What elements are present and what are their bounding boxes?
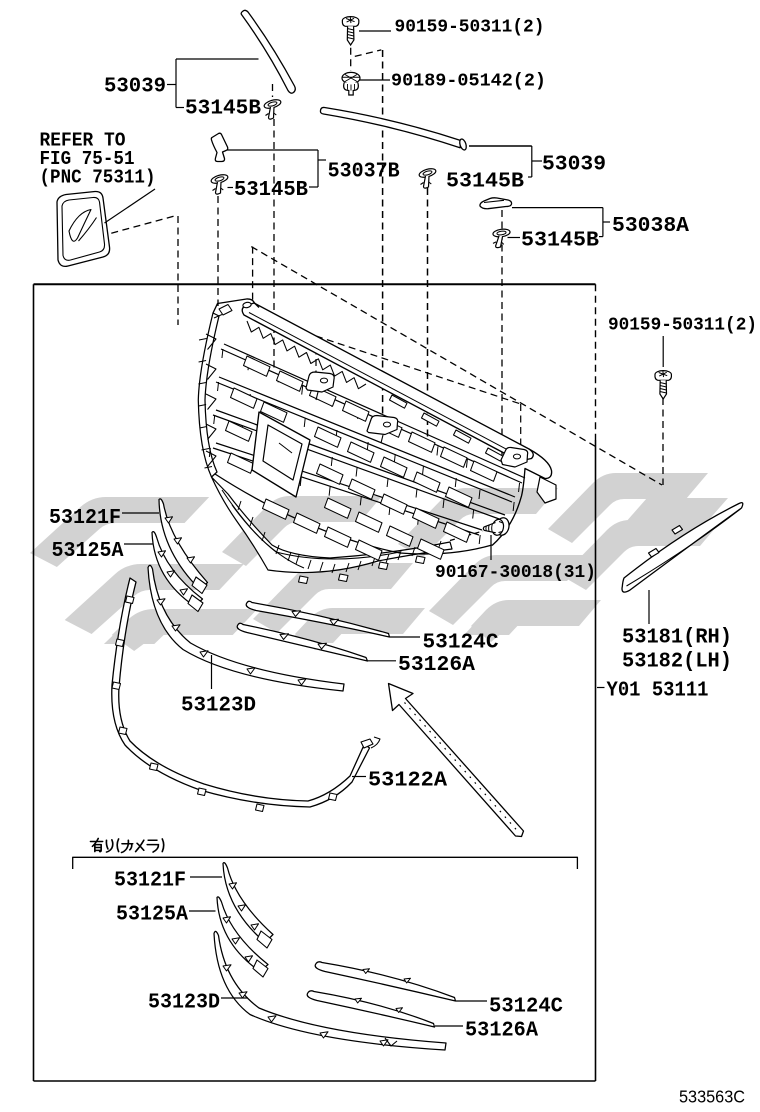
svg-text:53122A: 53122A (368, 769, 447, 793)
svg-text:90159-50311(2): 90159-50311(2) (608, 315, 757, 336)
svg-text:53126A: 53126A (398, 653, 475, 677)
svg-text:53038A: 53038A (612, 214, 689, 238)
svg-text:53037B: 53037B (328, 160, 400, 184)
svg-text:533563C: 533563C (679, 1087, 745, 1107)
svg-text:53182(LH): 53182(LH) (622, 650, 732, 674)
svg-text:53123D: 53123D (181, 694, 256, 718)
svg-text:Y01 53111: Y01 53111 (607, 679, 709, 703)
svg-text:53125A: 53125A (52, 539, 124, 563)
svg-text:53145B: 53145B (185, 97, 261, 121)
svg-text:53126A: 53126A (465, 1019, 538, 1043)
svg-text:(PNC 75311): (PNC 75311) (40, 167, 156, 189)
svg-text:53121F: 53121F (114, 869, 186, 893)
svg-text:90189-05142(2): 90189-05142(2) (391, 71, 546, 92)
svg-text:53124C: 53124C (423, 631, 499, 655)
svg-text:90159-50311(2): 90159-50311(2) (395, 17, 545, 38)
svg-text:53124C: 53124C (489, 995, 563, 1019)
svg-text:53145B: 53145B (521, 229, 599, 253)
svg-text:53039: 53039 (104, 75, 166, 99)
svg-text:53125A: 53125A (116, 903, 188, 927)
svg-text:53181(RH): 53181(RH) (622, 626, 732, 650)
svg-text:53145B: 53145B (234, 178, 308, 202)
svg-text:53145B: 53145B (446, 170, 524, 194)
svg-text:53123D: 53123D (148, 991, 220, 1015)
svg-text:53121F: 53121F (49, 506, 121, 530)
svg-text:90167-30018(31): 90167-30018(31) (435, 562, 596, 583)
svg-text:53039: 53039 (542, 153, 606, 177)
